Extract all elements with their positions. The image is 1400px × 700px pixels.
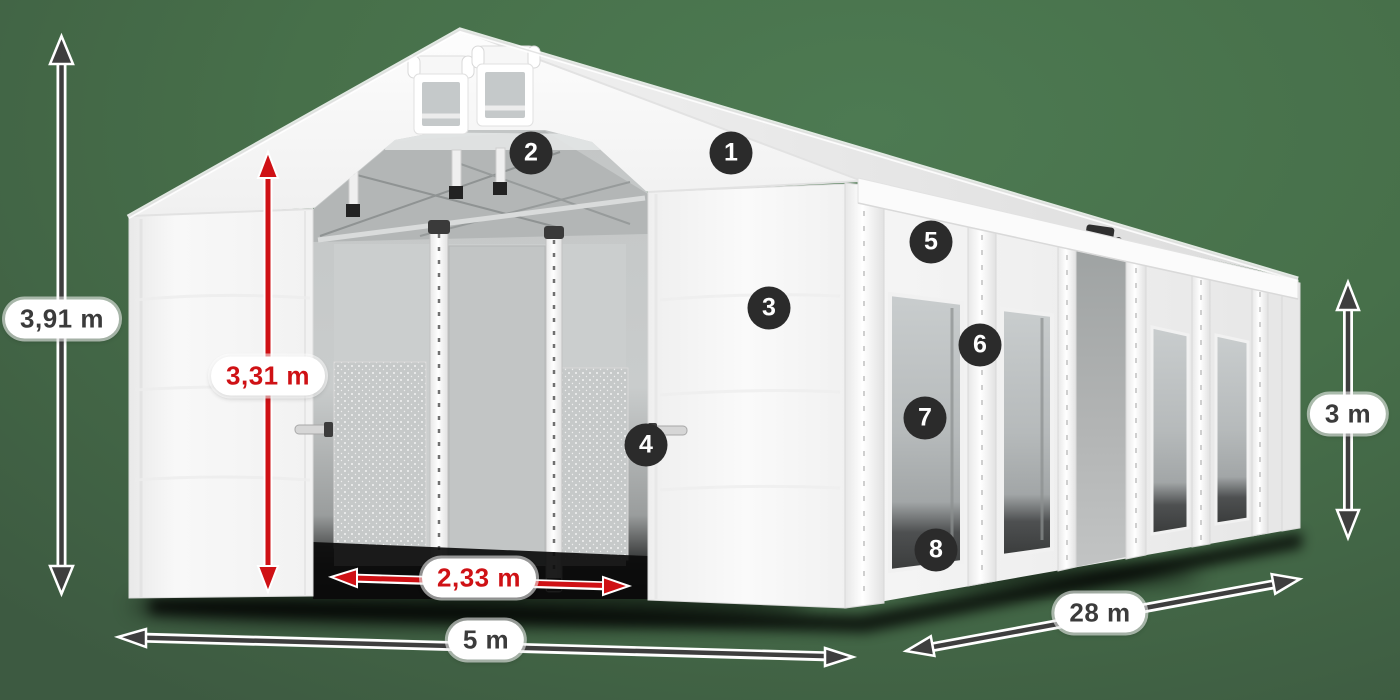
marker-badge-4: 4 bbox=[625, 424, 668, 467]
dimension-label-entrance-width: 2,33 m bbox=[422, 559, 536, 598]
marker-badge-5: 5 bbox=[910, 221, 953, 264]
dimension-label-width: 5 m bbox=[448, 621, 524, 660]
dimension-label-side-height: 3 m bbox=[1310, 395, 1386, 434]
dimension-label-inner-height: 3,31 m bbox=[211, 357, 325, 396]
tent-dimension-diagram: 3,91 m 3,31 m 2,33 m 5 m 28 m 3 m 1 2 3 … bbox=[0, 0, 1400, 700]
marker-badge-3: 3 bbox=[748, 287, 791, 330]
marker-badge-6: 6 bbox=[959, 324, 1002, 367]
dimension-label-total-height: 3,91 m bbox=[5, 300, 119, 339]
side-entrance-panel bbox=[1076, 233, 1126, 567]
side-window bbox=[1152, 327, 1188, 534]
marker-badge-7: 7 bbox=[904, 397, 947, 440]
tent-illustration bbox=[0, 0, 1400, 700]
marker-badge-2: 2 bbox=[510, 132, 553, 175]
side-window bbox=[1216, 335, 1248, 524]
inner-mesh-window-left bbox=[334, 362, 426, 548]
roof-vent-left bbox=[408, 56, 474, 134]
marker-badge-1: 1 bbox=[710, 132, 753, 175]
side-window bbox=[1002, 309, 1052, 556]
front-right-door-panel bbox=[648, 184, 846, 608]
entrance-interior bbox=[313, 128, 648, 600]
roof-vent-right bbox=[472, 46, 540, 126]
marker-badge-8: 8 bbox=[915, 529, 958, 572]
dimension-label-length: 28 m bbox=[1054, 594, 1145, 633]
front-left-door-panel bbox=[129, 209, 333, 598]
